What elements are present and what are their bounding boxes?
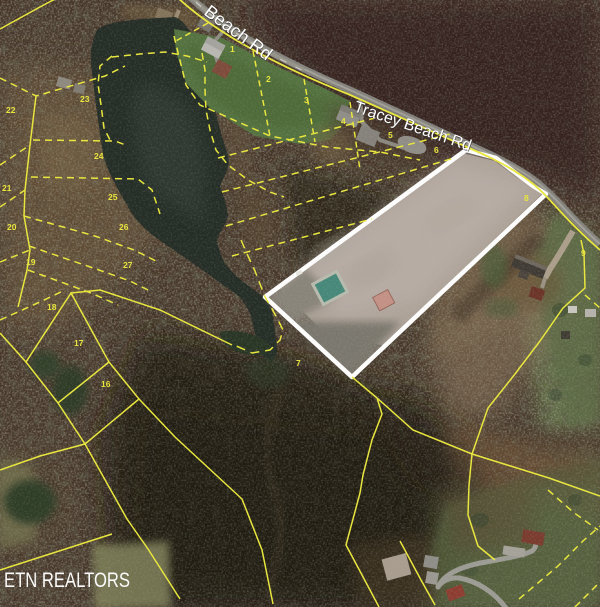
svg-text:6: 6 [434, 145, 439, 155]
svg-text:27: 27 [123, 260, 133, 270]
svg-text:16: 16 [101, 379, 111, 389]
svg-text:20: 20 [7, 222, 17, 232]
svg-text:9: 9 [581, 248, 586, 258]
svg-text:4: 4 [341, 116, 346, 126]
svg-text:5: 5 [388, 130, 393, 140]
svg-text:21: 21 [2, 183, 12, 193]
svg-text:ETN REALTORS: ETN REALTORS [4, 569, 130, 592]
svg-text:3: 3 [304, 95, 309, 105]
svg-text:7: 7 [296, 358, 301, 368]
svg-text:19: 19 [26, 257, 36, 267]
svg-text:2: 2 [266, 74, 271, 84]
svg-text:25: 25 [108, 192, 118, 202]
svg-text:24: 24 [94, 151, 104, 161]
svg-text:8: 8 [524, 193, 529, 203]
svg-text:23: 23 [80, 94, 90, 104]
svg-text:26: 26 [119, 222, 129, 232]
svg-text:18: 18 [47, 302, 57, 312]
svg-text:22: 22 [6, 105, 16, 115]
svg-text:17: 17 [74, 338, 84, 348]
svg-text:1: 1 [230, 44, 235, 54]
